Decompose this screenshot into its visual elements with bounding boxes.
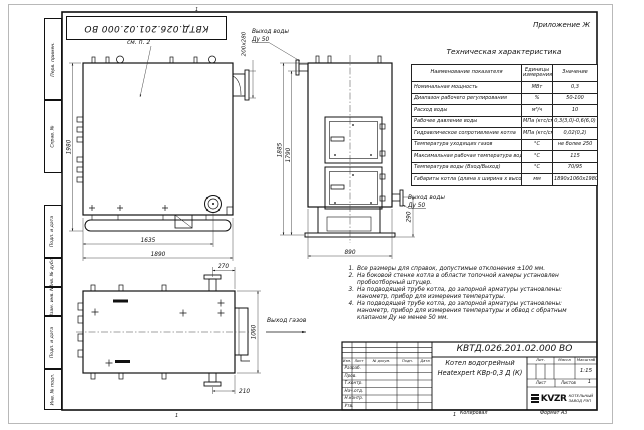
title-block-doc-number: КВТД.026.201.02.000 ВО	[434, 343, 595, 356]
margin-box-podp-data-2: Подп. и дата	[44, 316, 62, 369]
spec-value: 0,3	[553, 82, 598, 94]
spec-units: °С	[522, 151, 553, 163]
role-razrab: Разраб.	[343, 365, 366, 373]
spec-col-value: Значение	[553, 65, 598, 82]
sheets-label: Листов	[561, 381, 576, 385]
sheets-cell: Листов 1	[555, 379, 597, 387]
spec-units: МВт	[522, 82, 553, 94]
spec-row: Температура уходящих газов°Сне более 250	[412, 139, 598, 151]
spec-table-body: Номинальная мощностьМВт0,3Диапазон рабоч…	[412, 82, 598, 186]
role-nkontr: Н.контр.	[343, 395, 366, 403]
spec-name: Рабочее давление воды	[412, 116, 522, 128]
spec-row: Рабочее давление водыМПа (кгс/см²)0,3(3,…	[412, 116, 598, 128]
scale-label: Масштаб	[575, 357, 597, 364]
spec-value: не более 250	[553, 139, 598, 151]
dim-outlet-height: 290	[407, 211, 413, 222]
drawing-sheet: 1 1 1	[0, 0, 644, 430]
spec-row: Расход водым³/ч10	[412, 105, 598, 117]
role-nachotd: Нач.отд.	[343, 388, 366, 396]
col-list: Лист	[352, 358, 366, 365]
spec-name: Диапазон рабочего регулирования	[412, 93, 522, 105]
spec-units: м³/ч	[522, 105, 553, 117]
spec-units: °С	[522, 139, 553, 151]
note-text: На боковой стенке котла в области топочн…	[357, 273, 594, 287]
spec-row: Температура воды (Вход/Выход)°С70/95	[412, 162, 598, 174]
dim-front-height-inner: 1790	[286, 147, 292, 162]
top-document-stamp: КВТД.026.201.02.000 ВО	[66, 16, 227, 40]
dim-front-width: 890	[344, 250, 355, 256]
spec-row: Номинальная мощностьМВт0,3	[412, 82, 598, 94]
note-number: 1.	[344, 266, 357, 273]
spec-units: мм	[522, 174, 553, 186]
col-podp: Подп.	[397, 358, 418, 365]
zone-marker-top: 1	[195, 7, 198, 13]
company-name: КОТЕЛЬНЫЙ ЗАВОД РЭП	[569, 394, 594, 403]
spec-units: %	[522, 93, 553, 105]
col-ndoc: № докум.	[366, 358, 397, 365]
spec-value: 115	[553, 151, 598, 163]
copy-label: Копировал	[460, 411, 487, 416]
product-name-line1: Котел водогрейный	[434, 359, 526, 369]
label-water-outlet-right-2: Ду 50	[407, 203, 425, 209]
role-tkontr: Т.контр.	[343, 380, 366, 388]
note-item: 4.На подводящей трубе котла, до запорной…	[344, 301, 594, 322]
spec-row: Габариты котла (длина х ширина х высота)…	[412, 174, 598, 186]
spec-table-title: Техническая характеристика	[411, 47, 597, 56]
spec-name: Габариты котла (длина х ширина х высота)	[412, 174, 522, 186]
spec-units: МПа (кгс/см²)	[522, 128, 553, 140]
logo-bars-icon	[531, 394, 539, 403]
product-name: Котел водогрейный Heatexpert КВр-0,3 Д (…	[434, 359, 526, 379]
role-utv: Утв.	[343, 403, 366, 411]
note-item: 2.На боковой стенке котла в области топо…	[344, 273, 594, 287]
spec-col-units: Единицы измерения	[522, 65, 553, 82]
margin-box-podp-data-1: Подп. и дата	[44, 205, 62, 258]
note-text: Все размеры для справок, допустимые откл…	[357, 266, 545, 273]
spec-row: Гидравлическое сопротивление котлаМПа (к…	[412, 128, 598, 140]
label-gas-outlet: Выход газов	[267, 317, 307, 324]
note-number: 3.	[344, 287, 357, 301]
note-text: На подводящей трубе котла, до запорной а…	[357, 287, 594, 301]
spec-value: 50-100	[553, 93, 598, 105]
spec-value: 10	[553, 105, 598, 117]
format-label: Формат А3	[540, 411, 567, 416]
spec-units: МПа (кгс/см²)	[522, 116, 553, 128]
spec-col-name: Наименование показателя	[412, 65, 522, 82]
dim-plan-width: 1060	[252, 324, 258, 339]
label-water-outlet-top-1: Выход воды	[252, 29, 289, 35]
note-number: 4.	[344, 301, 357, 322]
sheet-label: Лист	[527, 379, 555, 387]
callout-see-note: см. п. 2	[127, 39, 150, 46]
spec-value: 70/95	[553, 162, 598, 174]
spec-name: Расход воды	[412, 105, 522, 117]
margin-box-inv-podl: Инв. № подл.	[44, 369, 62, 410]
logo-text: KVZR	[541, 394, 567, 404]
margin-box-vzam-inv: Взам. инв. №	[44, 287, 62, 316]
spec-value: 0,3(3,0)-0,6(6,0)	[553, 116, 598, 128]
col-izm: Изм.	[342, 358, 352, 365]
dim-front-height-outer: 1885	[278, 142, 284, 157]
dim-side-height: 1980	[67, 139, 73, 154]
notes-list: 1.Все размеры для справок, допустимые от…	[344, 266, 594, 323]
scale-value: 1:15	[575, 364, 597, 379]
dim-side-len-inner: 1635	[141, 238, 156, 244]
note-number: 2.	[344, 273, 357, 287]
spec-table: Наименование показателя Единицы измерени…	[411, 64, 598, 186]
appendix-label: Приложение Ж	[420, 21, 590, 29]
col-data: Дата	[418, 358, 432, 365]
dim-side-len-total: 1890	[151, 252, 166, 258]
margin-box-sprav-no: Справ. №	[44, 100, 62, 173]
margin-box-perv-primen: Перв. примен.	[44, 18, 62, 100]
spec-name: Гидравлическое сопротивление котла	[412, 128, 522, 140]
dim-flue-section: 200х280	[242, 31, 248, 56]
spec-name: Номинальная мощность	[412, 82, 522, 94]
spec-units: °С	[522, 162, 553, 174]
zone-marker-bottom-mid: 1	[453, 412, 456, 418]
mass-label: Масса	[554, 357, 575, 364]
company-logo: KVZR КОТЕЛЬНЫЙ ЗАВОД РЭП	[529, 388, 595, 409]
dim-plan-flue-offset: 270	[218, 264, 229, 270]
lit-label: Лит.	[527, 357, 554, 364]
note-text: На подводящей трубе котла, до запорной а…	[357, 301, 594, 322]
zone-marker-bottom-left: 1	[175, 413, 178, 419]
sheets-value: 1	[588, 380, 591, 386]
spec-name: Температура уходящих газов	[412, 139, 522, 151]
product-name-line2: Heatexpert КВр-0,3 Д (К)	[434, 369, 526, 379]
dim-plan-pipe-offset: 210	[239, 389, 250, 395]
spec-name: Максимальная рабочая температура воды	[412, 151, 522, 163]
note-item: 3.На подводящей трубе котла, до запорной…	[344, 287, 594, 301]
label-water-outlet-top-2: Ду 50	[251, 37, 269, 43]
label-water-outlet-right-1: Выход воды	[408, 195, 445, 201]
note-item: 1.Все размеры для справок, допустимые от…	[344, 266, 594, 273]
spec-row: Максимальная рабочая температура воды°С1…	[412, 151, 598, 163]
spec-value: 0,02(0,2)	[553, 128, 598, 140]
spec-row: Диапазон рабочего регулирования%50-100	[412, 93, 598, 105]
role-prov: Пров.	[343, 373, 366, 381]
spec-name: Температура воды (Вход/Выход)	[412, 162, 522, 174]
spec-value: 1890х1060х1980	[553, 174, 598, 186]
margin-box-inv-dubl: Инв. № дубл.	[44, 258, 62, 287]
